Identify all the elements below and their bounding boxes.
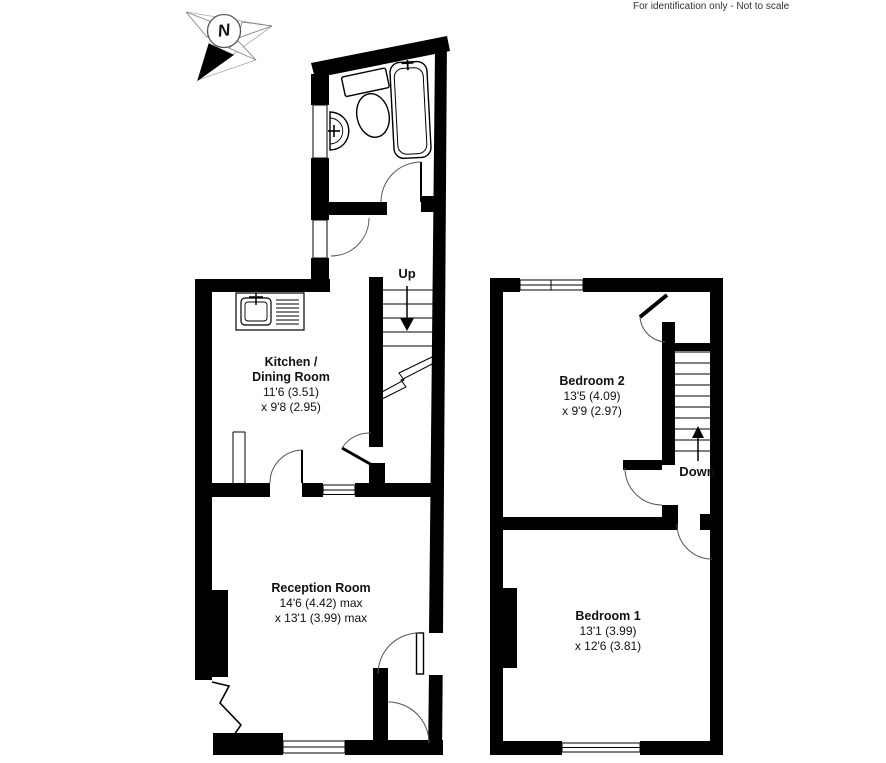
kitchen-to-reception-door xyxy=(342,433,372,465)
kitchen-label: Kitchen / Dining Room 11'6 (3.51) x 9'8 … xyxy=(252,355,330,415)
floor-plan-svg xyxy=(0,0,886,763)
bathroom-door xyxy=(381,162,421,202)
bedroom1-dim1: 13'1 (3.99) xyxy=(575,624,641,639)
kitchen-name-line2: Dining Room xyxy=(252,370,330,385)
bedroom1-name: Bedroom 1 xyxy=(575,609,641,624)
basin-icon xyxy=(328,112,349,150)
kitchen-sink-icon xyxy=(236,293,304,330)
bedroom2-label: Bedroom 2 13'5 (4.09) x 9'9 (2.97) xyxy=(559,374,624,419)
down-arrow-icon xyxy=(692,426,704,438)
divider-hatch-window xyxy=(323,485,355,495)
reception-window xyxy=(283,741,345,753)
bedroom2-name: Bedroom 2 xyxy=(559,374,624,389)
kitchen-dim2: x 9'8 (2.95) xyxy=(252,400,330,415)
hall-lower-door xyxy=(388,702,429,743)
bedroom1-label: Bedroom 1 13'1 (3.99) x 12'6 (3.81) xyxy=(575,609,641,654)
bathtub-icon xyxy=(389,59,431,159)
bathroom-window xyxy=(313,105,327,158)
compass-needle-icon xyxy=(198,44,233,80)
down-label: Down xyxy=(679,464,714,479)
bedroom2-window xyxy=(520,280,583,290)
hall-to-kitchen-door xyxy=(331,218,369,256)
bedroom2-door xyxy=(625,468,662,505)
reception-label: Reception Room 14'6 (4.42) max x 13'1 (3… xyxy=(271,581,370,626)
bedroom1-dim2: x 12'6 (3.81) xyxy=(575,639,641,654)
front-door xyxy=(378,633,424,674)
kitchen-counter-lines xyxy=(233,432,245,483)
reception-dim2: x 13'1 (3.99) max xyxy=(271,611,370,626)
floorplan-page: For identification only - Not to scale K… xyxy=(0,0,886,763)
hall-side-window xyxy=(313,220,327,258)
stairs-up xyxy=(382,286,434,399)
bedroom2-dim2: x 9'9 (2.97) xyxy=(559,404,624,419)
first-floor-windows xyxy=(520,280,640,752)
first-floor-walls xyxy=(490,278,723,755)
bedroom2-dim1: 13'5 (4.09) xyxy=(559,389,624,404)
bedroom1-window xyxy=(562,743,640,752)
kitchen-dim1: 11'6 (3.51) xyxy=(252,385,330,400)
reception-dim1: 14'6 (4.42) max xyxy=(271,596,370,611)
stairs-down xyxy=(675,352,710,461)
kitchen-name-line1: Kitchen / xyxy=(252,355,330,370)
compass-north-label: N xyxy=(217,20,232,42)
up-label: Up xyxy=(398,266,415,281)
reception-name: Reception Room xyxy=(271,581,370,596)
up-arrow-icon xyxy=(400,318,414,331)
reception-inner-door xyxy=(270,450,302,483)
disclaimer-text: For identification only - Not to scale xyxy=(633,1,789,12)
ground-floor-doors xyxy=(270,162,429,743)
bathroom-fixtures xyxy=(328,59,431,159)
